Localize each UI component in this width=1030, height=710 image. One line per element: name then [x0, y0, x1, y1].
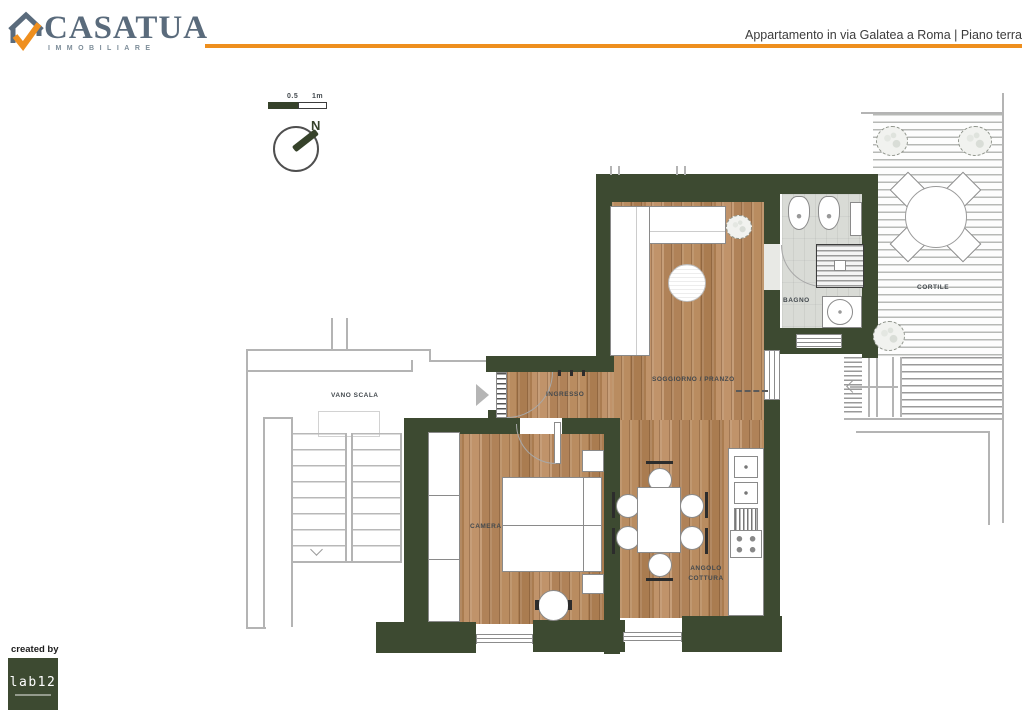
page-title: Appartamento in via Galatea a Roma | Pia… — [745, 28, 1022, 42]
room-label-vano-scala: VANO SCALA — [331, 392, 379, 399]
stair-edge — [400, 433, 402, 563]
room-label-ingresso: INGRESSO — [546, 391, 584, 398]
vent-tick — [618, 166, 620, 175]
plant — [876, 126, 908, 156]
room-label-bagno: BAGNO — [783, 297, 810, 304]
room-label-soggiorno: SOGGIORNO / PRANZO — [652, 376, 735, 383]
wall — [376, 622, 476, 653]
outdoor-table — [905, 186, 967, 248]
scalebar-light-segment — [298, 102, 327, 109]
radiator-tick — [582, 370, 585, 376]
scalebar-half-label: 0.5 — [287, 93, 298, 100]
dining-chair — [680, 526, 704, 550]
header-rule — [205, 44, 1022, 48]
outline-line — [246, 370, 413, 372]
chair-back-mark — [612, 492, 615, 518]
window — [796, 334, 842, 348]
plant — [958, 126, 992, 156]
window — [476, 634, 533, 644]
entrance-arrow-icon — [476, 384, 489, 406]
stairwell-outline — [263, 417, 265, 627]
created-by-label: created by — [11, 644, 59, 655]
kitchen-sink — [734, 456, 758, 478]
stairwell-outline — [263, 417, 293, 419]
outline-line — [246, 349, 430, 351]
chair-back-mark — [705, 528, 708, 554]
nightstand — [582, 450, 604, 472]
stair-treads — [351, 433, 401, 565]
casatua-house-logo-icon — [6, 10, 46, 52]
wall — [404, 418, 430, 642]
scalebar-full-label: 1m — [312, 93, 323, 100]
wardrobe — [428, 432, 460, 622]
wall — [596, 174, 778, 202]
radiator-tick — [558, 370, 561, 376]
compass-north-label: N — [311, 118, 321, 133]
outline-line — [246, 627, 266, 629]
wall — [682, 616, 782, 652]
chair-back-mark — [646, 578, 673, 581]
vent-tick — [684, 166, 686, 175]
room-label-cortile: CORTILE — [917, 284, 949, 291]
nightstand — [582, 574, 604, 594]
lab12-logo-text: lab12 — [8, 675, 58, 690]
floorplan-page: CASATUA IMMOBILIARE Appartamento in via … — [0, 0, 1030, 710]
wall — [486, 356, 614, 372]
dining-chair — [680, 494, 704, 518]
cooktop — [730, 530, 762, 558]
room-label-camera: CAMERA — [470, 523, 502, 530]
outline-line — [246, 349, 248, 629]
chair-back-mark — [612, 528, 615, 554]
dining-chair — [648, 553, 672, 577]
plant — [726, 215, 752, 239]
chair-back-mark — [646, 461, 673, 464]
bidet — [818, 196, 840, 230]
cortile-outline — [1002, 93, 1004, 523]
brand-name: CASATUA — [44, 10, 208, 47]
toilet — [788, 196, 810, 230]
stool — [538, 590, 569, 621]
window — [764, 350, 780, 400]
stair-rail — [345, 433, 347, 563]
window — [623, 632, 682, 642]
kitchen-sink — [734, 482, 758, 504]
lower-room-outline — [844, 418, 1004, 420]
dashed-opening — [736, 390, 768, 392]
radiator-tick — [570, 370, 573, 376]
entrance-door — [496, 372, 507, 418]
external-stair-steps — [902, 357, 1002, 417]
lab12-tagline — [15, 694, 51, 696]
bath-cabinet — [850, 202, 862, 236]
shower-drain — [834, 260, 846, 271]
lower-room-outline — [856, 431, 990, 433]
brand-subtitle: IMMOBILIARE — [48, 45, 156, 52]
lab12-logo: lab12 — [8, 658, 58, 710]
sofa-chaise — [610, 206, 650, 356]
outline-line — [411, 360, 413, 372]
double-bed — [502, 477, 602, 572]
lower-room-outline — [988, 431, 990, 525]
rug — [668, 264, 706, 302]
wall — [533, 620, 625, 652]
outline-line — [346, 318, 348, 351]
stair-rail — [351, 433, 353, 563]
room-label-angolo-cottura: ANGOLO COTTURA — [682, 564, 730, 584]
vent-tick — [676, 166, 678, 175]
plant — [873, 321, 905, 351]
stair-edge — [293, 561, 402, 563]
scalebar-dark-segment — [268, 102, 298, 109]
chair-back-mark — [705, 492, 708, 518]
vent-tick — [610, 166, 612, 175]
bagno-door-gap — [764, 244, 780, 290]
bath-sink — [827, 299, 853, 325]
outline-line — [331, 318, 333, 351]
stool-arm — [535, 600, 539, 610]
dining-table — [637, 487, 681, 553]
stool-arm — [568, 600, 572, 610]
